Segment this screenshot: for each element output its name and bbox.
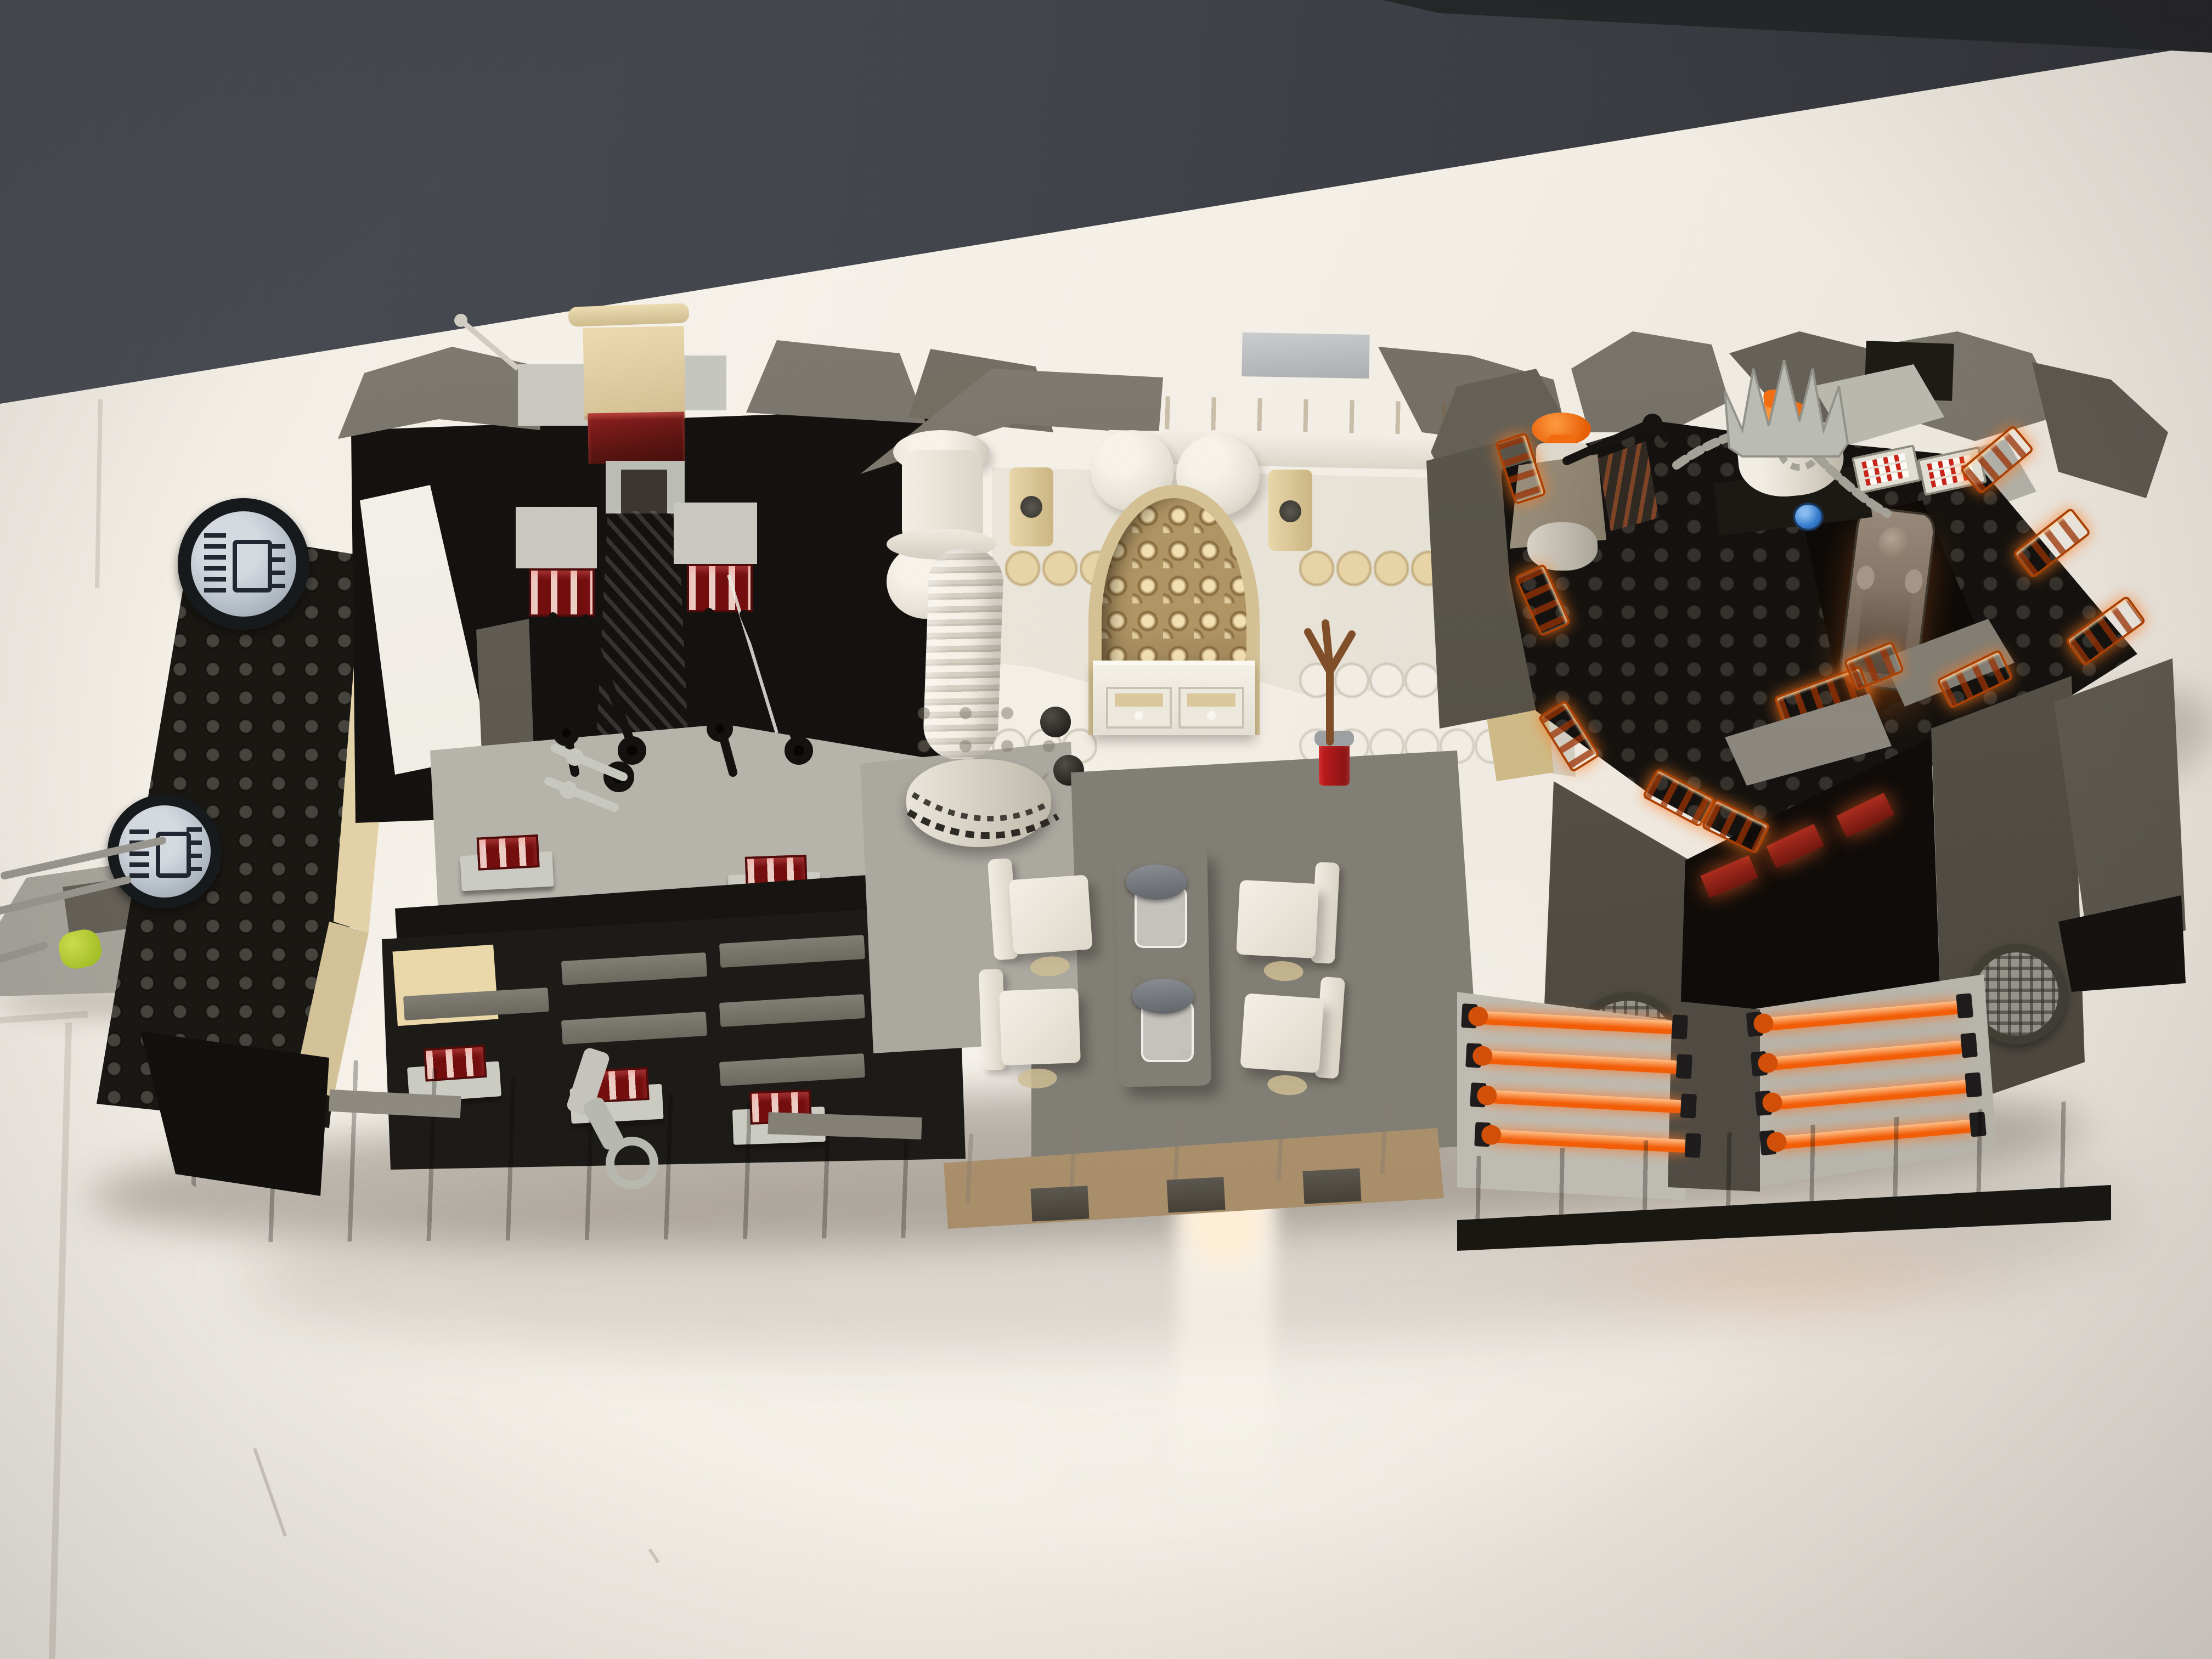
bar-clip bbox=[1680, 1093, 1697, 1118]
pilaster-pinhole bbox=[1279, 500, 1301, 522]
black-ball-joint-1 bbox=[1040, 707, 1071, 737]
gate-pillar-right-grille bbox=[687, 564, 753, 612]
goblet-gray-cap bbox=[1132, 979, 1194, 1014]
cylinder-orange-nub bbox=[1763, 388, 1791, 408]
chair-foot bbox=[1017, 1068, 1057, 1089]
prong-stand-red-holder bbox=[1319, 740, 1350, 786]
pilaster-pinhole bbox=[1020, 496, 1042, 518]
gate-pillar-left-grille bbox=[529, 568, 595, 617]
barrel-foot-cylinder bbox=[1527, 522, 1598, 571]
tan-pilaster-right bbox=[1268, 470, 1312, 551]
sideboard bbox=[1093, 661, 1255, 735]
bar-clip bbox=[1965, 1072, 1982, 1097]
dining-chair-4 bbox=[1231, 971, 1345, 1110]
han-head bbox=[1877, 526, 1911, 562]
red-grille bbox=[477, 834, 540, 871]
gate-channel-void bbox=[621, 470, 667, 513]
goblet-2 bbox=[1132, 979, 1198, 1071]
goblet-1 bbox=[1126, 865, 1192, 957]
tile-print-hatch bbox=[129, 822, 150, 877]
chair-seat bbox=[999, 988, 1081, 1065]
dining-chair-2 bbox=[979, 966, 1088, 1102]
tile-print-panel bbox=[233, 541, 272, 592]
tower-printed-round-tile-top bbox=[178, 498, 309, 630]
tile-print-vents bbox=[269, 534, 286, 587]
tile-print-hatch bbox=[204, 531, 227, 594]
gate-tan-hinge-bar bbox=[568, 303, 689, 327]
gate-trans-darkred-brick bbox=[588, 411, 685, 464]
nozzle-ring bbox=[606, 1137, 658, 1189]
bar-tip bbox=[1476, 1085, 1497, 1106]
prong-stand-collar bbox=[1314, 731, 1354, 746]
base-foot-1 bbox=[1031, 1186, 1090, 1221]
chair-seat bbox=[1236, 880, 1319, 958]
column-base-drum bbox=[906, 759, 1051, 847]
goblet-gray-cap bbox=[1126, 865, 1187, 900]
drawer-knob bbox=[1207, 711, 1216, 720]
terrace-grille-a bbox=[460, 851, 554, 891]
dining-roof-cap-tile bbox=[1242, 332, 1369, 379]
drawer-tan-tile bbox=[1115, 693, 1163, 707]
bar-tip bbox=[1472, 1046, 1493, 1066]
chair-foot bbox=[1267, 1074, 1307, 1097]
bar-clip bbox=[1960, 1032, 1978, 1058]
bar-clip bbox=[1956, 993, 1973, 1018]
drawer-right bbox=[1178, 687, 1244, 729]
drawer-left bbox=[1106, 687, 1172, 729]
chair-seat bbox=[1240, 993, 1324, 1073]
drawer-knob bbox=[1135, 711, 1143, 720]
gate-pillar-right-brick bbox=[674, 503, 757, 564]
bar-tip bbox=[1468, 1006, 1488, 1027]
gate-pillar-left-brick bbox=[516, 507, 597, 568]
gate-tan-hinge-plate bbox=[583, 326, 686, 420]
base-foot-3 bbox=[1303, 1168, 1362, 1204]
bar-clip bbox=[1672, 1014, 1688, 1039]
base-foot-2 bbox=[1167, 1177, 1226, 1212]
gate-gray-brick-left bbox=[518, 364, 588, 426]
bar-tip bbox=[1481, 1125, 1502, 1145]
blue-round-tile bbox=[1793, 503, 1824, 531]
tan-pilaster-left bbox=[1009, 467, 1053, 546]
tower-printed-round-tile-bottom bbox=[108, 794, 222, 909]
tile-print-vents bbox=[187, 826, 201, 872]
photo-scene bbox=[0, 0, 2212, 1659]
tile-print-panel bbox=[155, 831, 190, 877]
drawer-tan-tile bbox=[1187, 693, 1235, 707]
gray-nozzle-lever bbox=[575, 1031, 663, 1194]
bar-clip bbox=[1676, 1054, 1692, 1079]
chair-seat bbox=[1009, 874, 1093, 955]
gate-channel bbox=[606, 461, 685, 513]
